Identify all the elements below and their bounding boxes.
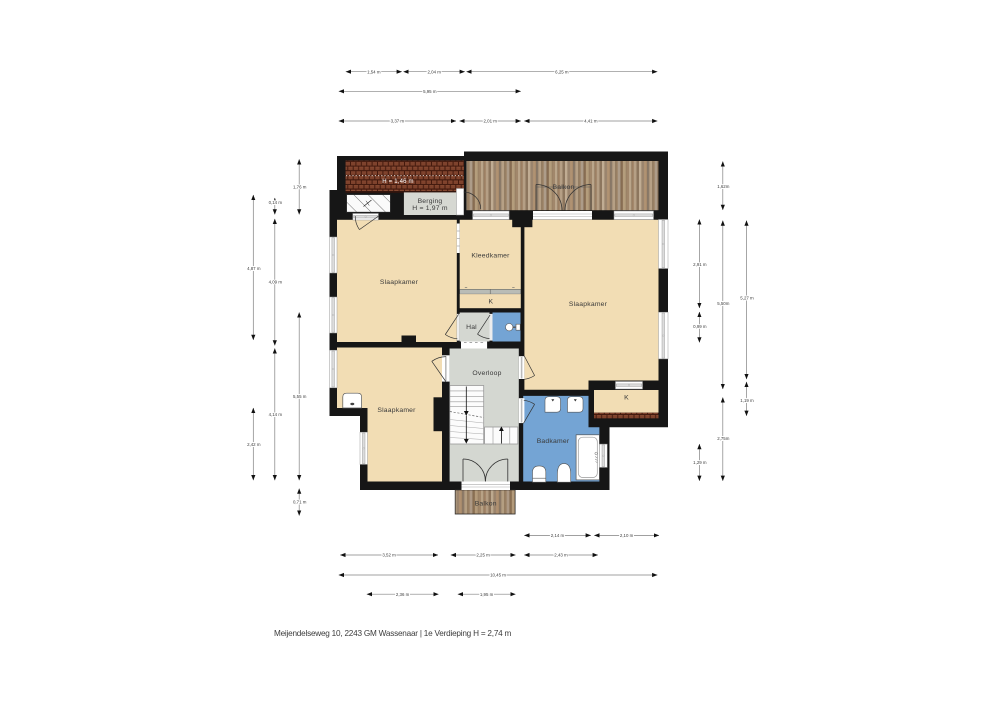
svg-text:1,95 m: 1,95 m — [480, 592, 494, 597]
svg-text:2,36 m: 2,36 m — [396, 592, 410, 597]
svg-text:H = 1,46 m: H = 1,46 m — [382, 179, 414, 185]
svg-text:2,10 m: 2,10 m — [620, 533, 634, 538]
svg-text:10,45 m: 10,45 m — [490, 573, 506, 578]
svg-text:Berging: Berging — [418, 198, 443, 205]
svg-text:5,55 m: 5,55 m — [293, 394, 307, 399]
svg-text:0,71 m: 0,71 m — [293, 500, 307, 505]
svg-text:Hal: Hal — [466, 324, 477, 331]
svg-text:2,14 m: 2,14 m — [551, 533, 565, 538]
svg-text:0,14 m: 0,14 m — [269, 200, 283, 205]
svg-text:0,99 m: 0,99 m — [693, 324, 707, 329]
svg-text:Kleedkamer: Kleedkamer — [471, 252, 510, 259]
svg-text:4,41 m: 4,41 m — [584, 119, 598, 124]
svg-text:Slaapkamer: Slaapkamer — [380, 279, 419, 286]
svg-text:Overloop: Overloop — [472, 370, 501, 377]
svg-text:H = 1,97 m: H = 1,97 m — [412, 205, 448, 212]
svg-text:Slaapkamer: Slaapkamer — [377, 407, 416, 414]
svg-text:3,37 m: 3,37 m — [391, 119, 405, 124]
svg-text:4,14 m: 4,14 m — [269, 412, 283, 417]
svg-text:1,76 m: 1,76 m — [293, 185, 307, 190]
svg-text:K: K — [624, 394, 629, 401]
svg-text:2,42 m: 2,42 m — [247, 442, 261, 447]
svg-text:Slaapkamer: Slaapkamer — [569, 301, 608, 308]
svg-text:6,25 m: 6,25 m — [555, 69, 569, 74]
svg-text:2,75m: 2,75m — [717, 436, 730, 441]
svg-text:2,01 m: 2,01 m — [483, 119, 497, 124]
svg-text:1,29 m: 1,29 m — [693, 460, 707, 465]
svg-text:1,62m: 1,62m — [717, 184, 730, 189]
svg-text:Badkamer: Badkamer — [537, 438, 570, 445]
svg-text:2,91 m: 2,91 m — [693, 262, 707, 267]
svg-text:5,27 m: 5,27 m — [740, 296, 754, 301]
svg-text:5,95 m: 5,95 m — [423, 89, 437, 94]
svg-text:4,87 m: 4,87 m — [247, 266, 261, 271]
svg-text:K: K — [489, 299, 494, 306]
svg-text:1,19 m: 1,19 m — [740, 398, 754, 403]
svg-text:Balkon: Balkon — [475, 501, 497, 508]
svg-text:4,09 m: 4,09 m — [269, 280, 283, 285]
svg-text:2,04 m: 2,04 m — [427, 69, 441, 74]
svg-text:5,50m: 5,50m — [717, 301, 730, 306]
svg-text:Meijendelseweg 10, 2243 GM Was: Meijendelseweg 10, 2243 GM Wassenaar | 1… — [274, 629, 512, 638]
svg-text:2,25 m: 2,25 m — [476, 553, 490, 558]
svg-text:Balkon: Balkon — [553, 184, 575, 191]
svg-text:2,43 m: 2,43 m — [554, 553, 568, 558]
svg-text:1,54 m: 1,54 m — [367, 69, 381, 74]
svg-text:3,52 m: 3,52 m — [382, 553, 396, 558]
